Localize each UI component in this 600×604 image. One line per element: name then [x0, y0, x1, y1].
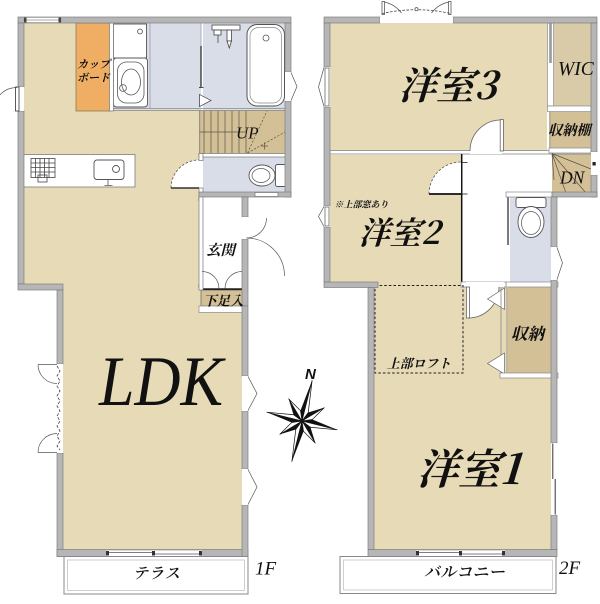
- svg-text:1F: 1F: [255, 559, 277, 580]
- svg-text:LDK: LDK: [98, 343, 226, 421]
- svg-text:DN: DN: [559, 168, 586, 188]
- svg-text:WIC: WIC: [558, 59, 595, 80]
- svg-text:2F: 2F: [559, 558, 581, 579]
- svg-text:N: N: [305, 366, 317, 383]
- svg-text:UP: UP: [236, 124, 259, 143]
